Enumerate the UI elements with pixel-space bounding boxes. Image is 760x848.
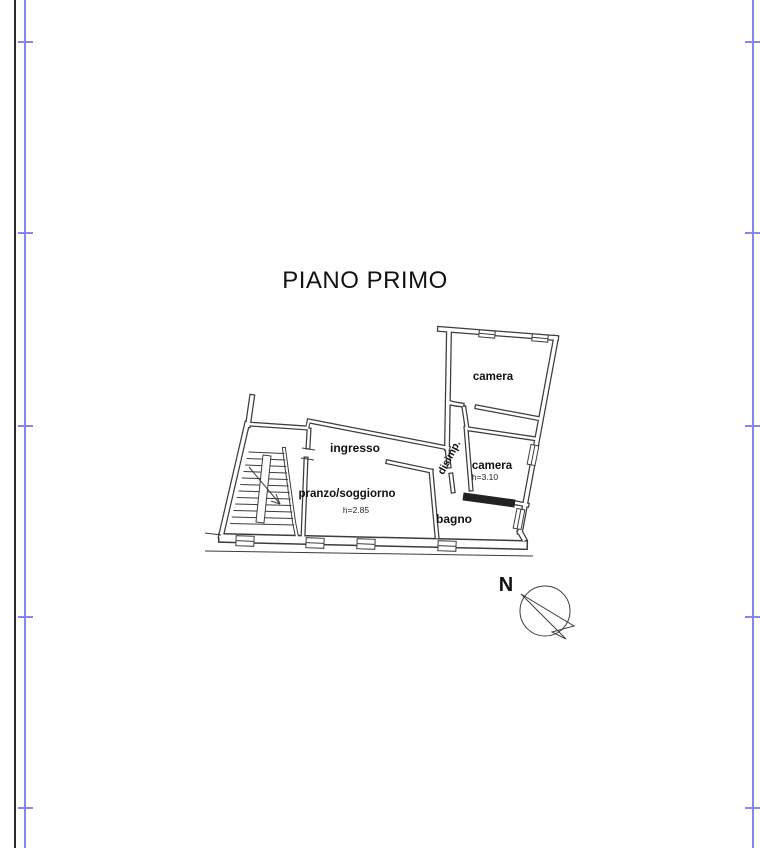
page-title: PIANO PRIMO: [282, 267, 448, 294]
room-height-camera-lower: h=3.10: [472, 472, 499, 482]
window: [306, 538, 324, 549]
room-label-pranzo-soggiorno: pranzo/soggiorno: [298, 488, 395, 500]
compass-north-label: N: [499, 574, 513, 596]
window: [438, 541, 456, 552]
room-height-pranzo-soggiorno: h=2.85: [343, 505, 370, 515]
window: [479, 330, 496, 338]
floor-plan-svg: N PIANO PRIMO camera camera h=3.10 disim…: [0, 0, 760, 848]
room-label-camera-lower: camera: [472, 460, 513, 472]
north-compass: [520, 586, 574, 639]
window: [236, 536, 254, 547]
room-label-bagno: bagno: [436, 512, 472, 526]
window: [527, 444, 539, 465]
window: [532, 334, 549, 342]
walls-white-core: [221, 329, 556, 545]
room-label-ingresso: ingresso: [330, 441, 380, 455]
compass-circle: [520, 586, 570, 636]
drawing-sheet: N PIANO PRIMO camera camera h=3.10 disim…: [0, 0, 760, 848]
room-label-camera-top: camera: [473, 371, 514, 383]
compass-needle: [521, 594, 574, 639]
solid-wall-segment: [467, 497, 511, 503]
window: [357, 539, 375, 550]
